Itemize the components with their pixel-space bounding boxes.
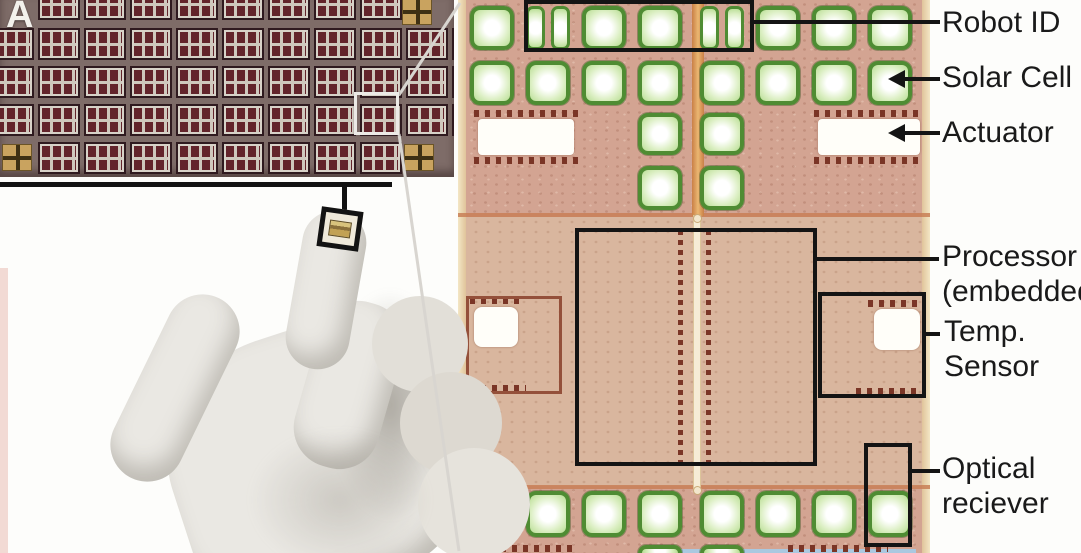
fingertip-chip: [328, 220, 352, 239]
label-optical-receiver-line1: Optical: [942, 452, 1035, 486]
solar-cell-arrow-icon: [888, 70, 905, 88]
processor-connector-line: [817, 257, 939, 261]
label-temp-sensor-line1: Temp.: [944, 315, 1026, 349]
figure-canvas: A Robot ID Solar Cell Actuator Processor…: [0, 0, 1081, 553]
label-temp-sensor-line2: Sensor: [944, 350, 1039, 384]
fingertip-chip-frame: [316, 206, 363, 251]
label-processor-line2: (embedded): [942, 275, 1081, 309]
temp-sensor-connector-line: [926, 332, 940, 336]
wafer-zoom-callout-box: [354, 92, 399, 135]
label-actuator: Actuator: [942, 116, 1054, 150]
label-solar-cell: Solar Cell: [942, 61, 1072, 95]
actuator-arrow-line: [902, 131, 940, 135]
label-processor-line1: Processor: [942, 240, 1077, 274]
robot-id-connector-line: [754, 20, 940, 24]
actuator-arrow-icon: [888, 124, 905, 142]
solar-cell-arrow-line: [902, 77, 940, 81]
optical-receiver-connector-line: [912, 469, 940, 473]
label-optical-receiver-line2: reciever: [942, 487, 1049, 521]
label-robot-id: Robot ID: [942, 6, 1060, 40]
